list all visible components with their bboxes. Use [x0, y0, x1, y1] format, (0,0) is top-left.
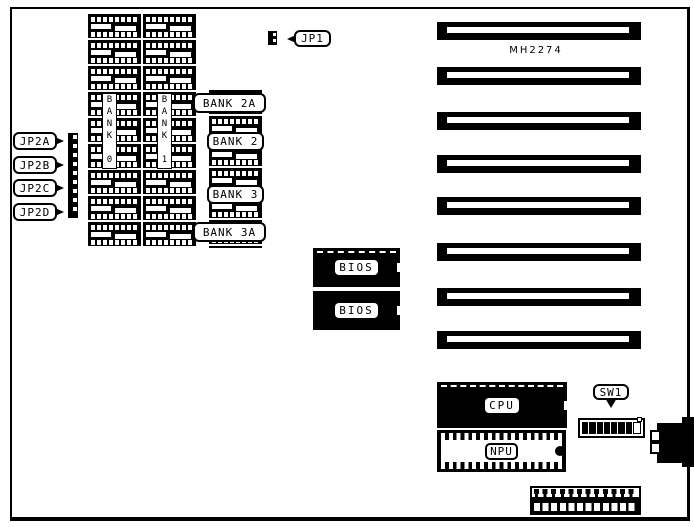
- connector-holes: [534, 503, 637, 511]
- dip-switch-8: [633, 422, 641, 434]
- pin1-dash-marker: [317, 251, 396, 253]
- pin1-dash-marker: [441, 385, 563, 387]
- expansion-slot-5: [437, 197, 641, 215]
- slot-opening: [447, 27, 629, 33]
- jp2-pin-header: [68, 133, 78, 218]
- socket-pin-row: [441, 433, 562, 440]
- dip-switch-2: [589, 422, 595, 434]
- dip-switch-flag: [637, 417, 642, 422]
- npu-socket: NPU: [437, 430, 566, 472]
- expansion-slot-2: [437, 67, 641, 85]
- chip-notch: [397, 306, 400, 315]
- connector-socket-row: [532, 501, 639, 513]
- dip-switch-3: [597, 422, 603, 434]
- jp2c-callout: JP2C: [13, 179, 57, 197]
- dip-switch-4: [604, 422, 610, 434]
- jp1-jumper: [268, 31, 277, 45]
- expansion-slot-7: [437, 288, 641, 306]
- sw1-pointer-icon: [605, 398, 617, 408]
- jp2d-label: JP2D: [20, 206, 51, 219]
- jp1-pointer-icon: [287, 35, 296, 43]
- sw1-dip-switch: [578, 418, 645, 438]
- jp2b-label: JP2B: [20, 159, 51, 172]
- slot-opening: [447, 293, 629, 299]
- dip-switch-7: [626, 422, 632, 434]
- bank3-callout: BANK 3: [207, 185, 264, 204]
- slot-opening: [447, 336, 629, 342]
- keyboard-connector: [650, 413, 694, 471]
- jp2c-pointer-icon: [55, 184, 64, 192]
- bank2-callout: BANK 2: [207, 132, 264, 151]
- slot-opening: [447, 117, 629, 123]
- jp1-label: JP1: [301, 32, 324, 45]
- bios-chip-top: BIOS: [313, 248, 400, 287]
- power-connector: [530, 486, 641, 515]
- bios-bottom-label: BIOS: [335, 303, 378, 318]
- slot-opening: [447, 202, 629, 208]
- jp2d-pointer-icon: [55, 208, 64, 216]
- jp2d-callout: JP2D: [13, 203, 57, 221]
- jp2b-pointer-icon: [55, 161, 64, 169]
- chip-notch: [397, 263, 400, 272]
- bank0-label: BANK 0: [102, 93, 117, 169]
- jp1-pin-ticks: [273, 33, 276, 43]
- expansion-slot-4: [437, 155, 641, 173]
- cpu-label: CPU: [485, 398, 519, 413]
- socket-pin-row: [441, 462, 562, 469]
- jp2c-label: JP2C: [20, 182, 51, 195]
- dip-switch-5: [611, 422, 617, 434]
- npu-label: NPU: [485, 443, 518, 460]
- sw1-callout: SW1: [593, 384, 629, 400]
- slot-opening: [447, 160, 629, 166]
- expansion-slot-6: [437, 243, 641, 261]
- sw1-label: SW1: [600, 386, 623, 399]
- dip-switch-1: [582, 422, 588, 434]
- jp2a-pointer-icon: [55, 137, 64, 145]
- board-model-label: MH2274: [437, 45, 635, 56]
- bank3a-callout: BANK 3A: [193, 222, 266, 242]
- expansion-slot-8: [437, 331, 641, 349]
- bank2a-callout: BANK 2A: [193, 93, 266, 113]
- slot-opening: [447, 72, 629, 78]
- bank1-label: BANK 1: [157, 93, 172, 169]
- jp2a-callout: JP2A: [13, 132, 57, 150]
- dip-switch-6: [618, 422, 624, 434]
- jp2-pin-ticks: [73, 135, 77, 216]
- cpu-chip: CPU: [437, 382, 567, 428]
- jp2a-label: JP2A: [20, 135, 51, 148]
- expansion-slot-1: [437, 22, 641, 40]
- npu-socket-body: NPU: [441, 440, 562, 462]
- chip-notch: [564, 401, 567, 410]
- bios-chip-bottom: BIOS: [313, 291, 400, 330]
- jp1-callout: JP1: [294, 30, 331, 47]
- slot-opening: [447, 248, 629, 254]
- bios-top-label: BIOS: [335, 260, 378, 275]
- jp2b-callout: JP2B: [13, 156, 57, 174]
- socket-notch: [555, 446, 565, 456]
- expansion-slot-3: [437, 112, 641, 130]
